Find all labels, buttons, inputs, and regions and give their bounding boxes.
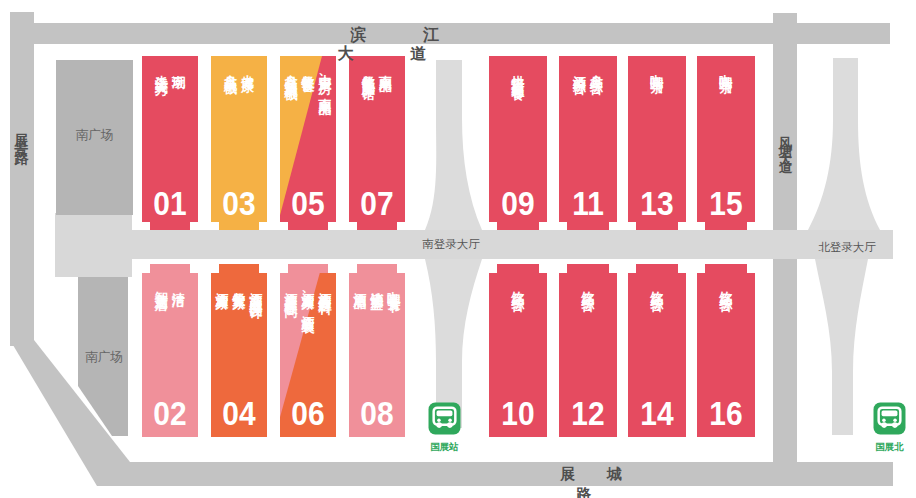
hall-10[interactable]: 饮品综合 10 xyxy=(489,273,547,437)
hall-14-number: 14 xyxy=(631,396,682,430)
walkway-south-upper xyxy=(425,60,482,230)
road-label-binjiang-avenue: 滨 江 大 道 xyxy=(290,25,500,63)
metro-icon xyxy=(873,402,906,435)
hall-14-entrance xyxy=(636,264,678,273)
hall-08-entrance xyxy=(357,264,397,273)
hall-07-label: 桌面用品 餐饮设备国际馆 xyxy=(360,64,394,78)
hall-05-entrance xyxy=(288,222,328,230)
hall-06-entrance xyxy=(288,264,328,273)
hall-08-label: 咖啡美食节 连锁加盟 酒店用品 xyxy=(352,281,403,291)
hall-11-number: 11 xyxy=(562,186,613,220)
hall-15-entrance xyxy=(705,222,747,230)
hall-03-entrance xyxy=(219,222,259,230)
hall-12-number: 12 xyxy=(562,396,613,430)
hall-13[interactable]: 咖啡与茶 13 xyxy=(628,56,686,222)
hall-05-number: 05 xyxy=(283,186,332,220)
road-label-fengtang-avenue: 风塘大道 xyxy=(776,125,794,157)
hall-09[interactable]: 烘焙甜点与轻餐 09 xyxy=(489,56,547,222)
hall-10-entrance xyxy=(497,264,539,273)
hall-10-label: 饮品综合 xyxy=(510,281,527,289)
hall-04-label: 酒店商业空间设计 餐饮家具 酒店家具 xyxy=(214,281,265,297)
hall-16-label: 饮品综合 xyxy=(718,281,735,289)
hall-12-entrance xyxy=(567,264,609,273)
hall-02[interactable]: 清洁 智慧酒店 02 xyxy=(142,273,198,437)
hall-05-label: 中央厨房、桌面用品 餐饮设备 食品包装及机械 xyxy=(283,64,334,95)
hall-03-number: 03 xyxy=(214,186,263,220)
hall-01-label: 潮玩 生活方式秀 xyxy=(153,64,187,74)
hall-04[interactable]: 酒店商业空间设计 餐饮家具 酒店家具 04 xyxy=(211,273,267,437)
metro-icon xyxy=(428,402,461,435)
hall-10-number: 10 xyxy=(492,396,543,430)
hall-06[interactable]: 酒店装饰材料 酒店家具、酒店软装 酒店餐厅样板间 06 xyxy=(280,273,336,437)
south-plaza-upper-label: 南广场 xyxy=(56,127,133,144)
station-guozhan-north[interactable]: 国展北 xyxy=(873,402,906,454)
hall-05[interactable]: 中央厨房、桌面用品 餐饮设备 食品包装及机械 05 xyxy=(280,56,336,222)
station-guozhan-label: 国展站 xyxy=(428,441,461,454)
south-plaza-lower-label: 南广场 xyxy=(79,349,129,366)
hall-11[interactable]: 食品综合 酒类综合 11 xyxy=(559,56,617,222)
hall-12-label: 饮品综合 xyxy=(580,281,597,289)
hall-02-number: 02 xyxy=(145,396,194,430)
hall-06-label: 酒店装饰材料 酒店家具、酒店软装 酒店餐厅样板间 xyxy=(283,281,334,312)
hall-13-entrance xyxy=(636,222,678,230)
expo-floor-map: 潮玩 生活方式秀 01 大健康 食品机械 03 中央厨房、桌面用品 餐饮设备 食… xyxy=(0,0,916,498)
walkway-north-lower xyxy=(815,259,868,435)
station-guozhan[interactable]: 国展站 xyxy=(428,402,461,454)
road-label-zhancheng-road: 展 城 路 xyxy=(526,464,656,498)
hall-16-entrance xyxy=(705,264,747,273)
station-guozhan-north-label: 国展北 xyxy=(873,441,906,454)
hall-14-label: 饮品综合 xyxy=(649,281,666,289)
hall-07-number: 07 xyxy=(352,186,401,220)
hall-11-entrance xyxy=(567,222,609,230)
hall-16-number: 16 xyxy=(700,396,751,430)
hall-01[interactable]: 潮玩 生活方式秀 01 xyxy=(142,56,198,222)
hall-13-label: 咖啡与茶 xyxy=(649,64,666,72)
hall-02-entrance xyxy=(150,264,190,273)
hall-12[interactable]: 饮品综合 12 xyxy=(559,273,617,437)
hall-15-number: 15 xyxy=(700,186,751,220)
hall-09-entrance xyxy=(497,222,539,230)
walkway-north-upper xyxy=(808,58,880,230)
hall-08-number: 08 xyxy=(352,396,401,430)
hall-04-number: 04 xyxy=(214,396,263,430)
concourse-band xyxy=(130,230,893,259)
hall-14[interactable]: 饮品综合 14 xyxy=(628,273,686,437)
hall-07-entrance xyxy=(357,222,397,230)
hall-15[interactable]: 咖啡与茶 15 xyxy=(697,56,755,222)
hall-09-label: 烘焙甜点与轻餐 xyxy=(510,64,527,78)
south-login-hall-label: 南登录大厅 xyxy=(403,237,499,252)
road-zhanjing xyxy=(10,12,34,346)
hall-09-number: 09 xyxy=(492,186,543,220)
hall-11-label: 食品综合 酒类综合 xyxy=(571,64,605,72)
hall-07[interactable]: 桌面用品 餐饮设备国际馆 07 xyxy=(349,56,405,222)
hall-03[interactable]: 大健康 食品机械 03 xyxy=(211,56,267,222)
hall-06-number: 06 xyxy=(283,396,332,430)
hall-13-number: 13 xyxy=(631,186,682,220)
hall-01-entrance xyxy=(150,222,190,230)
hall-02-label: 清洁 智慧酒店 xyxy=(153,281,187,289)
hall-15-label: 咖啡与茶 xyxy=(718,64,735,72)
north-login-hall-label: 北登录大厅 xyxy=(799,240,895,255)
hall-01-number: 01 xyxy=(145,186,194,220)
road-label-zhanjing-road: 展景路 xyxy=(13,122,31,149)
hall-03-label: 大健康 食品机械 xyxy=(222,64,256,72)
hall-16[interactable]: 饮品综合 16 xyxy=(697,273,755,437)
concourse-west-block xyxy=(55,213,132,277)
hall-08[interactable]: 咖啡美食节 连锁加盟 酒店用品 08 xyxy=(349,273,405,437)
hall-04-entrance xyxy=(219,264,259,273)
